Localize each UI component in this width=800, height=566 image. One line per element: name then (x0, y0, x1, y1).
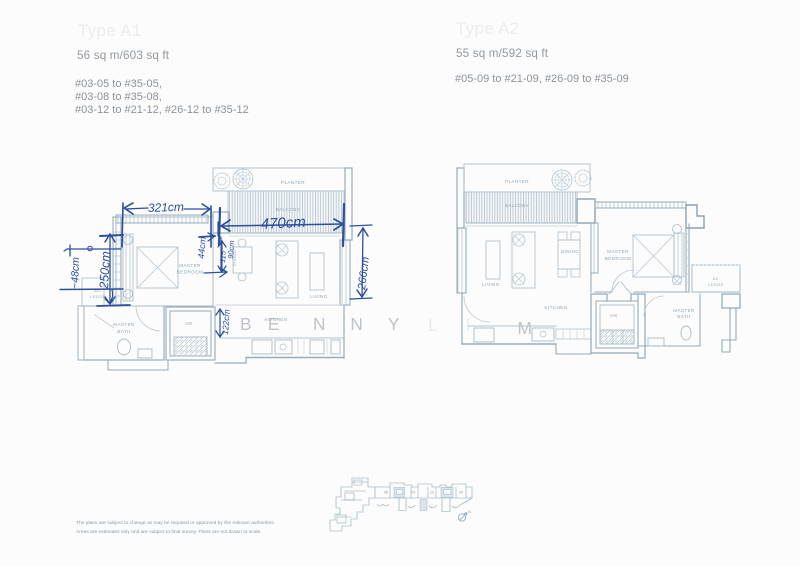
svg-text:Y: Y (388, 314, 400, 334)
svg-text:KITCHEN: KITCHEN (545, 305, 568, 310)
svg-text:~48cm: ~48cm (69, 257, 82, 289)
svg-text:BEDROOM: BEDROOM (605, 256, 632, 261)
svg-text:LIVING: LIVING (310, 294, 327, 299)
svg-text:08: 08 (384, 491, 388, 495)
svg-text:KITCHEN: KITCHEN (265, 317, 288, 322)
svg-text:90cm: 90cm (226, 240, 236, 259)
svg-text:MASTER: MASTER (607, 249, 629, 254)
svg-text:MASTER: MASTER (673, 308, 695, 313)
svg-text:N: N (350, 314, 362, 334)
svg-text:L: L (428, 315, 438, 335)
svg-text:M: M (517, 318, 531, 338)
svg-text:12: 12 (430, 491, 434, 495)
svg-text:09: 09 (459, 491, 463, 495)
svg-text:B: B (240, 314, 252, 334)
svg-text:03: 03 (411, 491, 415, 495)
svg-text:#05-09 to #21-09, #26-09 to #3: #05-09 to #21-09, #26-09 to #35-09 (455, 73, 629, 85)
svg-text:Areas are estimates only and a: Areas are estimates only and are subject… (76, 529, 262, 535)
svg-text:N: N (313, 314, 325, 334)
svg-text:AC: AC (713, 276, 719, 281)
svg-text:DINING: DINING (561, 249, 580, 254)
svg-text:BATH: BATH (117, 329, 131, 334)
svg-text:MASTER: MASTER (113, 322, 135, 327)
svg-text:#03-08 to #35-08,: #03-08 to #35-08, (75, 91, 162, 103)
svg-text:PLANTER: PLANTER (505, 179, 529, 184)
svg-text:I: I (466, 315, 471, 335)
svg-text:BALCONY: BALCONY (276, 207, 301, 212)
svg-text:470cm: 470cm (260, 214, 306, 233)
svg-text:LEDGE: LEDGE (90, 294, 106, 299)
svg-text:BEDROOM: BEDROOM (177, 270, 204, 275)
svg-text:44cm: 44cm (196, 236, 208, 259)
svg-text:PLANTER: PLANTER (281, 180, 305, 185)
svg-text:266cm: 266cm (356, 256, 372, 291)
svg-text:LIVING: LIVING (482, 282, 499, 287)
svg-text:BALCONY: BALCONY (505, 203, 530, 208)
svg-text:#03-05 to #35-05,: #03-05 to #35-05, (75, 78, 162, 90)
svg-text:LEDGE: LEDGE (708, 282, 724, 287)
svg-text:MASTER: MASTER (179, 263, 201, 268)
svg-text:122cm: 122cm (220, 309, 232, 335)
svg-text:250cm: 250cm (97, 251, 113, 290)
svg-text:The plans are subject to chang: The plans are subject to change as may b… (76, 520, 275, 526)
svg-text:55 sq m/592 sq ft: 55 sq m/592 sq ft (456, 47, 549, 60)
svg-text:Type A1: Type A1 (78, 21, 142, 40)
svg-text:N: N (468, 510, 471, 514)
svg-text:HS: HS (185, 321, 192, 326)
svg-text:#03-12 to #21-12, #26-12 to #3: #03-12 to #21-12, #26-12 to #35-12 (75, 104, 249, 116)
svg-text:321cm: 321cm (148, 200, 184, 215)
svg-text:Type A2: Type A2 (456, 19, 520, 38)
svg-text:56 sq m/603 sq ft: 56 sq m/603 sq ft (77, 49, 170, 62)
svg-text:HS: HS (610, 313, 617, 318)
svg-text:BATH: BATH (677, 314, 691, 319)
